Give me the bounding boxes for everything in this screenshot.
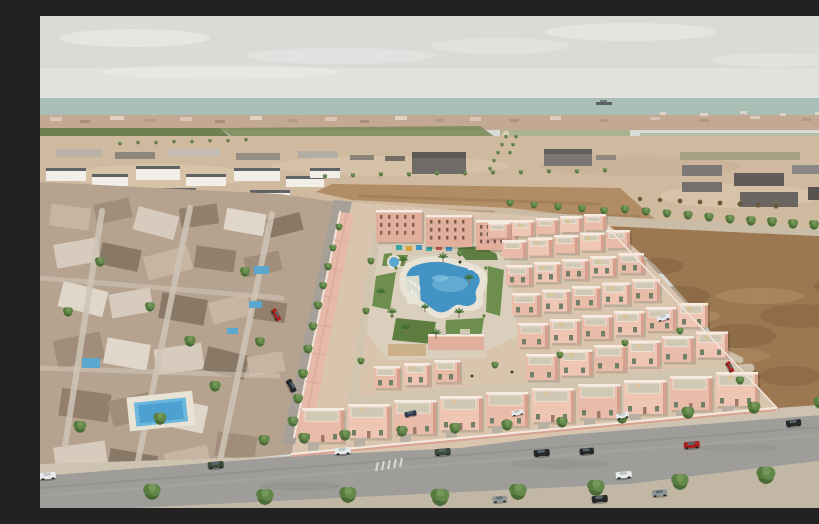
aerial-development-render — [40, 16, 819, 508]
render-canvas — [40, 16, 819, 508]
